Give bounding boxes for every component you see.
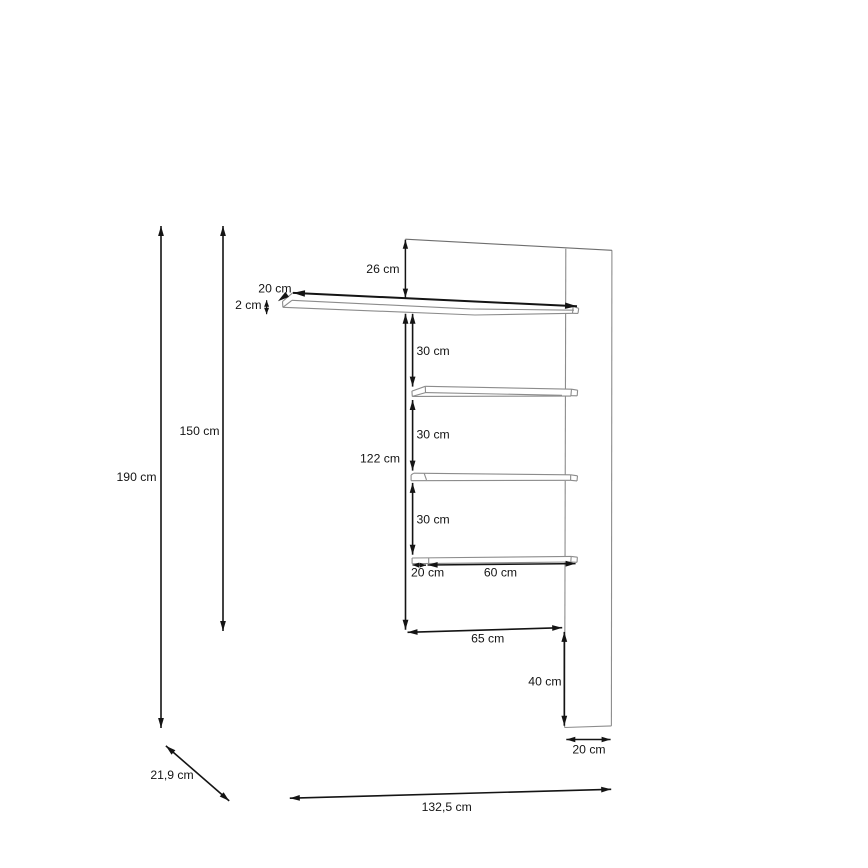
svg-text:2 cm: 2 cm	[235, 298, 261, 312]
svg-text:30 cm: 30 cm	[417, 428, 450, 442]
svg-text:190 cm: 190 cm	[117, 470, 157, 484]
svg-text:122 cm: 122 cm	[360, 452, 400, 466]
svg-text:21,9 cm: 21,9 cm	[150, 768, 193, 782]
svg-text:30 cm: 30 cm	[417, 513, 450, 527]
svg-text:132,5 cm: 132,5 cm	[422, 800, 472, 814]
svg-text:26 cm: 26 cm	[366, 262, 399, 276]
svg-text:20 cm: 20 cm	[411, 565, 444, 579]
svg-text:20 cm: 20 cm	[258, 281, 291, 295]
svg-text:150 cm: 150 cm	[180, 424, 220, 438]
svg-text:65 cm: 65 cm	[471, 631, 504, 645]
svg-text:20 cm: 20 cm	[572, 742, 605, 756]
svg-text:30 cm: 30 cm	[417, 344, 450, 358]
svg-text:40 cm: 40 cm	[528, 675, 561, 689]
svg-text:60 cm: 60 cm	[484, 566, 517, 580]
